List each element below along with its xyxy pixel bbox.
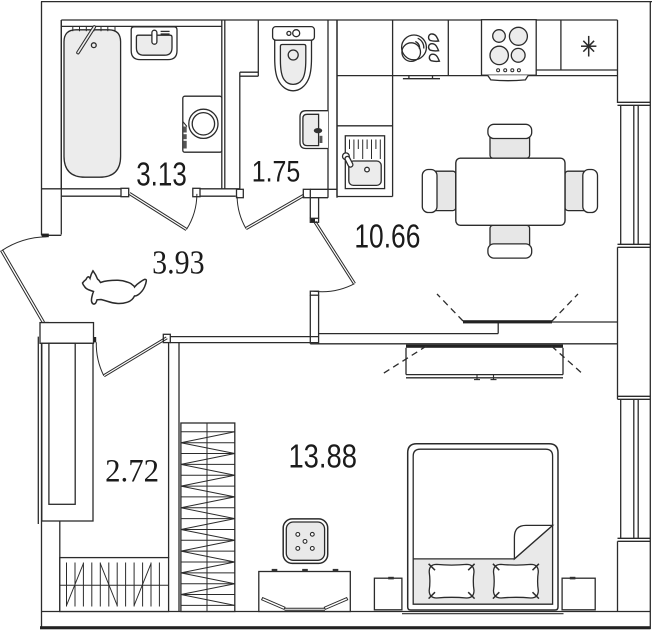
svg-text:3.93: 3.93 <box>152 245 205 282</box>
svg-text:3.13: 3.13 <box>136 155 187 192</box>
svg-text:13.88: 13.88 <box>288 438 357 475</box>
svg-text:10.66: 10.66 <box>354 219 420 256</box>
svg-text:2.72: 2.72 <box>105 454 159 490</box>
svg-text:1.75: 1.75 <box>252 155 301 188</box>
